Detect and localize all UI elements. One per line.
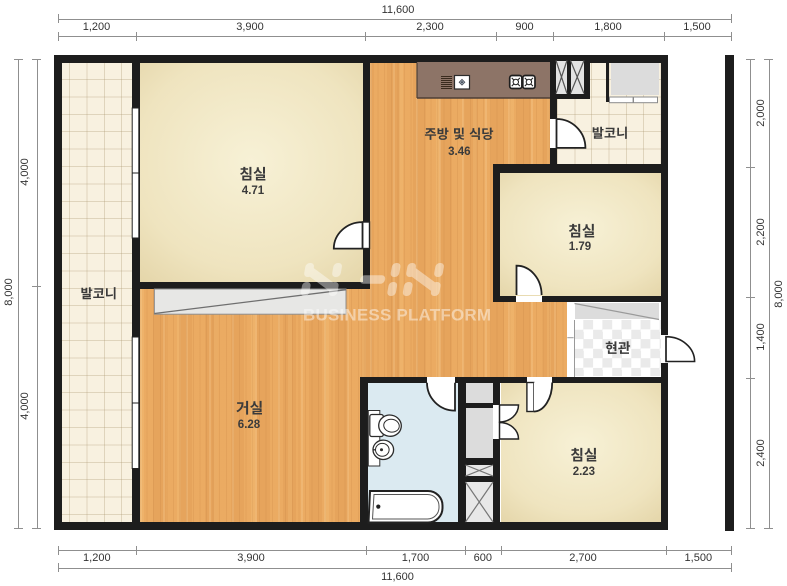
svg-text:BUSINESS PLATFORM: BUSINESS PLATFORM: [303, 306, 491, 325]
